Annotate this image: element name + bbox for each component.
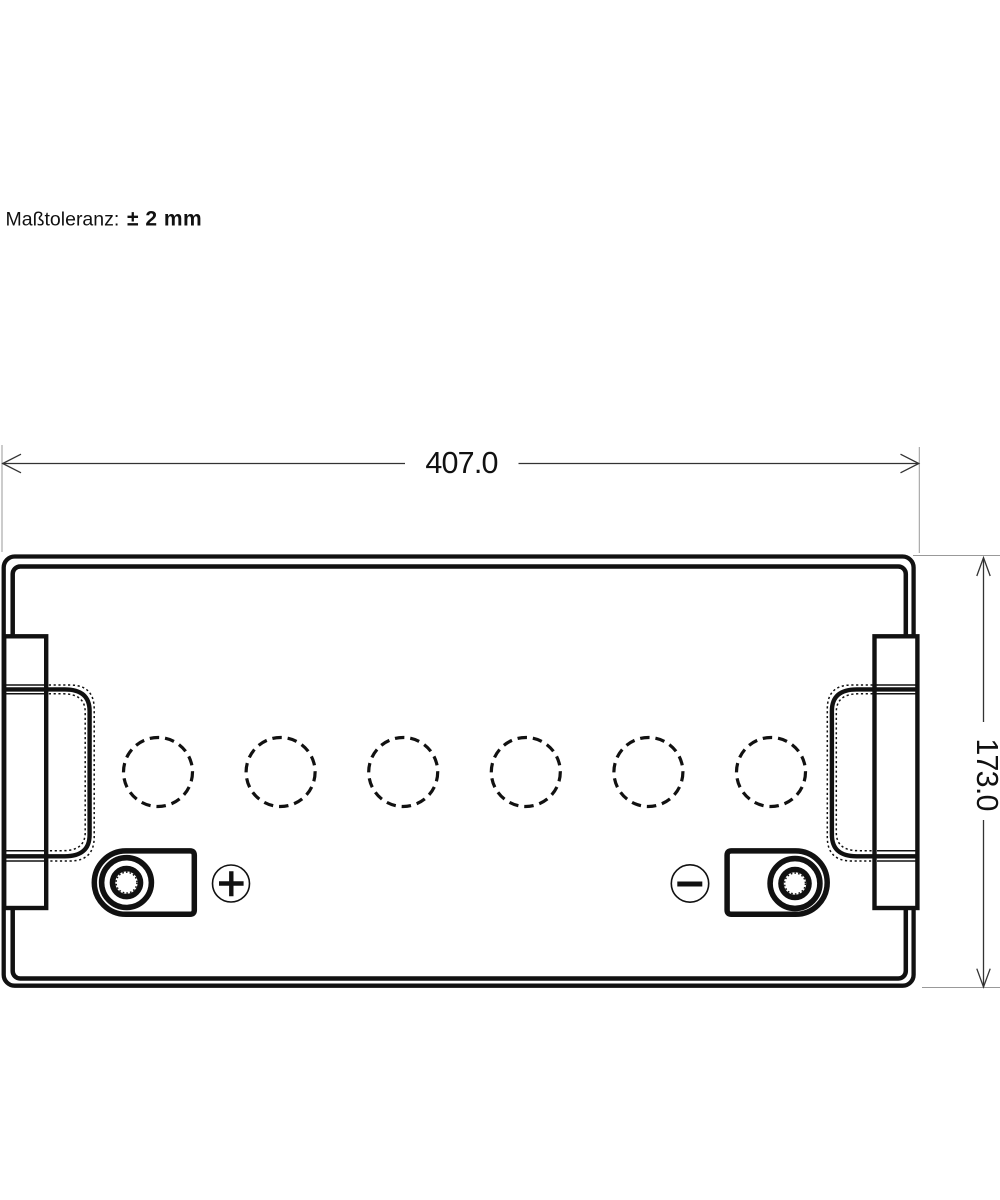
svg-text:± 2 mm: ± 2 mm [127, 208, 202, 231]
svg-text:Maßtoleranz:: Maßtoleranz: [6, 209, 120, 231]
svg-text:407.0: 407.0 [425, 446, 497, 480]
svg-text:173.0: 173.0 [970, 738, 1000, 810]
